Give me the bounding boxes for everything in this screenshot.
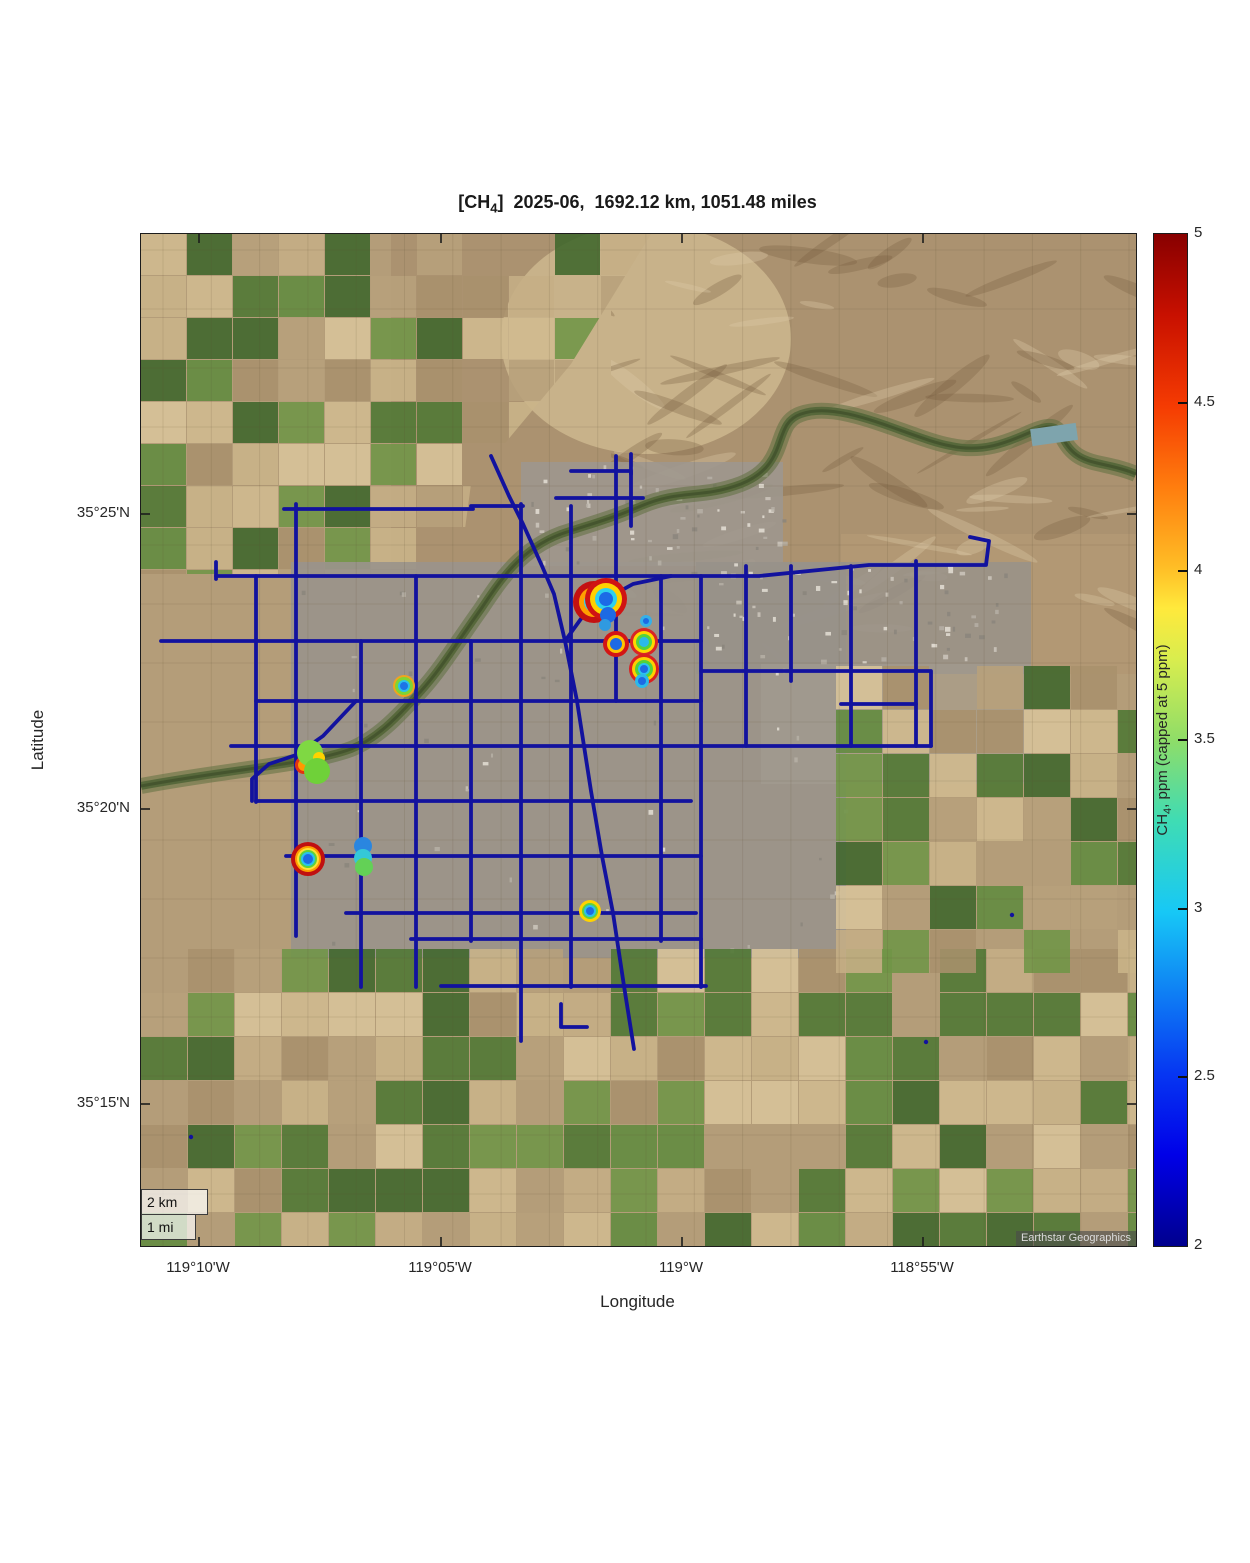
scalebar-1mi: 1 mi <box>141 1214 196 1240</box>
colorbar-tick-label: 2.5 <box>1194 1067 1215 1084</box>
colorbar-tick-label: 2 <box>1194 1236 1202 1253</box>
colorbar-tick-label: 3 <box>1194 899 1202 916</box>
colorbar-tick-label: 4.5 <box>1194 393 1215 410</box>
x-tick-label: 119°05'W <box>380 1259 500 1276</box>
x-tick-label: 118°55'W <box>862 1259 982 1276</box>
colorbar-label: CH4, ppm (capped at 5 ppm) <box>1154 644 1174 835</box>
colorbar-label-subscript: 4 <box>1162 808 1174 814</box>
colorbar-tick-mark <box>1178 570 1187 572</box>
satellite-map-canvas <box>141 234 1136 1246</box>
colorbar-tick-label: 4 <box>1194 561 1202 578</box>
matlab-figure: [CH4] 2025-06, 1692.12 km, 1051.48 miles… <box>0 0 1250 1563</box>
colorbar-label-units: , ppm (capped at 5 ppm) <box>1154 644 1171 807</box>
scalebar-2km: 2 km <box>141 1189 208 1215</box>
page-title: [CH4] 2025-06, 1692.12 km, 1051.48 miles <box>140 192 1135 216</box>
colorbar-tick-label: 5 <box>1194 224 1202 241</box>
x-tick-label: 119°10'W <box>138 1259 258 1276</box>
colorbar-tick-mark <box>1178 739 1187 741</box>
x-tick-label: 119°W <box>621 1259 741 1276</box>
colorbar-tick-label: 3.5 <box>1194 730 1215 747</box>
map-attribution: Earthstar Geographics <box>1016 1231 1136 1246</box>
colorbar-tick-mark <box>1178 1076 1187 1078</box>
map-plot-area: 2 km 1 mi Earthstar Geographics <box>140 233 1137 1247</box>
title-text: [CH <box>458 192 490 212</box>
x-axis-label: Longitude <box>140 1292 1135 1312</box>
y-tick-label: 35°20'N <box>12 799 130 816</box>
y-tick-label: 35°25'N <box>12 504 130 521</box>
title-stats: ] 2025-06, 1692.12 km, 1051.48 miles <box>497 192 816 212</box>
map-scalebar: 2 km 1 mi <box>141 1189 208 1240</box>
colorbar-tick-mark <box>1178 908 1187 910</box>
colorbar-label-text: CH <box>1154 814 1171 836</box>
colorbar-tick-mark <box>1178 402 1187 404</box>
y-tick-label: 35°15'N <box>12 1094 130 1111</box>
y-axis-label: Latitude <box>28 680 48 800</box>
